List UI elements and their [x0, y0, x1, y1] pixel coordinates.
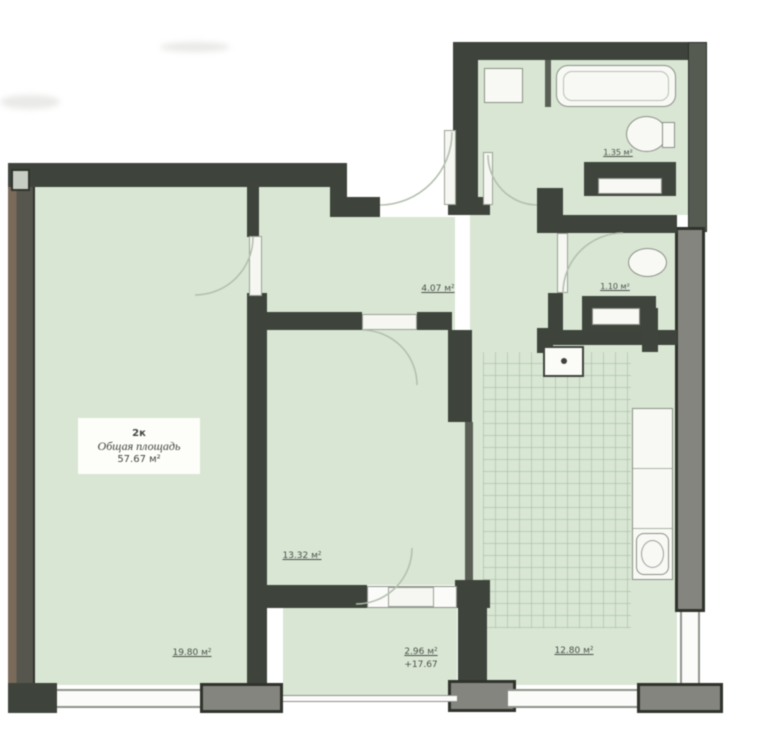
bedroom-area-label: 13.32 м² [262, 551, 342, 561]
counter-divider [633, 468, 672, 469]
vanity-sink [598, 178, 662, 194]
hallway-area-label: 4.07 м² [400, 284, 476, 294]
bathroom-door-arc [488, 155, 537, 205]
balcony-elevation-label: +17.67 [382, 660, 460, 670]
bathroom-area-label: 1.35 м² [586, 148, 650, 157]
shower-tray [484, 68, 523, 103]
entry-door-arc [380, 132, 452, 205]
door-swing-arcs [0, 0, 780, 750]
floor-plan: 2к Общая площадь 57.67 м² 19.80 м² 13.32… [0, 0, 780, 750]
bathtub-inner [563, 71, 669, 101]
unit-info-card: 2к Общая площадь 57.67 м² [78, 418, 200, 474]
vent-shaft-mark [561, 358, 567, 364]
wc-cabinet-sink [592, 308, 640, 325]
unit-total-area-value: 57.67 м² [117, 454, 160, 465]
wc-cabinet-leg [642, 308, 658, 352]
toilet-tank [662, 122, 675, 148]
balcony-door-arc [356, 548, 412, 604]
toilet-bowl [626, 116, 667, 152]
living-room-area-label: 19.80 м² [140, 648, 244, 658]
wc-area-label: 1.10 м² [584, 282, 646, 291]
balcony-area-label: 2.96 м² [382, 647, 460, 657]
wc-sink [628, 248, 667, 277]
counter-divider [633, 528, 672, 529]
floor-plan-page: 2к Общая площадь 57.67 м² 19.80 м² 13.32… [0, 0, 780, 750]
kitchen-area-label: 12.80 м² [532, 646, 616, 656]
unit-total-area-caption: Общая площадь [98, 439, 181, 454]
living-door-arc [195, 237, 253, 295]
kitchen-sink-basin [641, 540, 664, 568]
unit-type-label: 2к [132, 428, 146, 439]
bedroom-door-arc [362, 330, 417, 385]
